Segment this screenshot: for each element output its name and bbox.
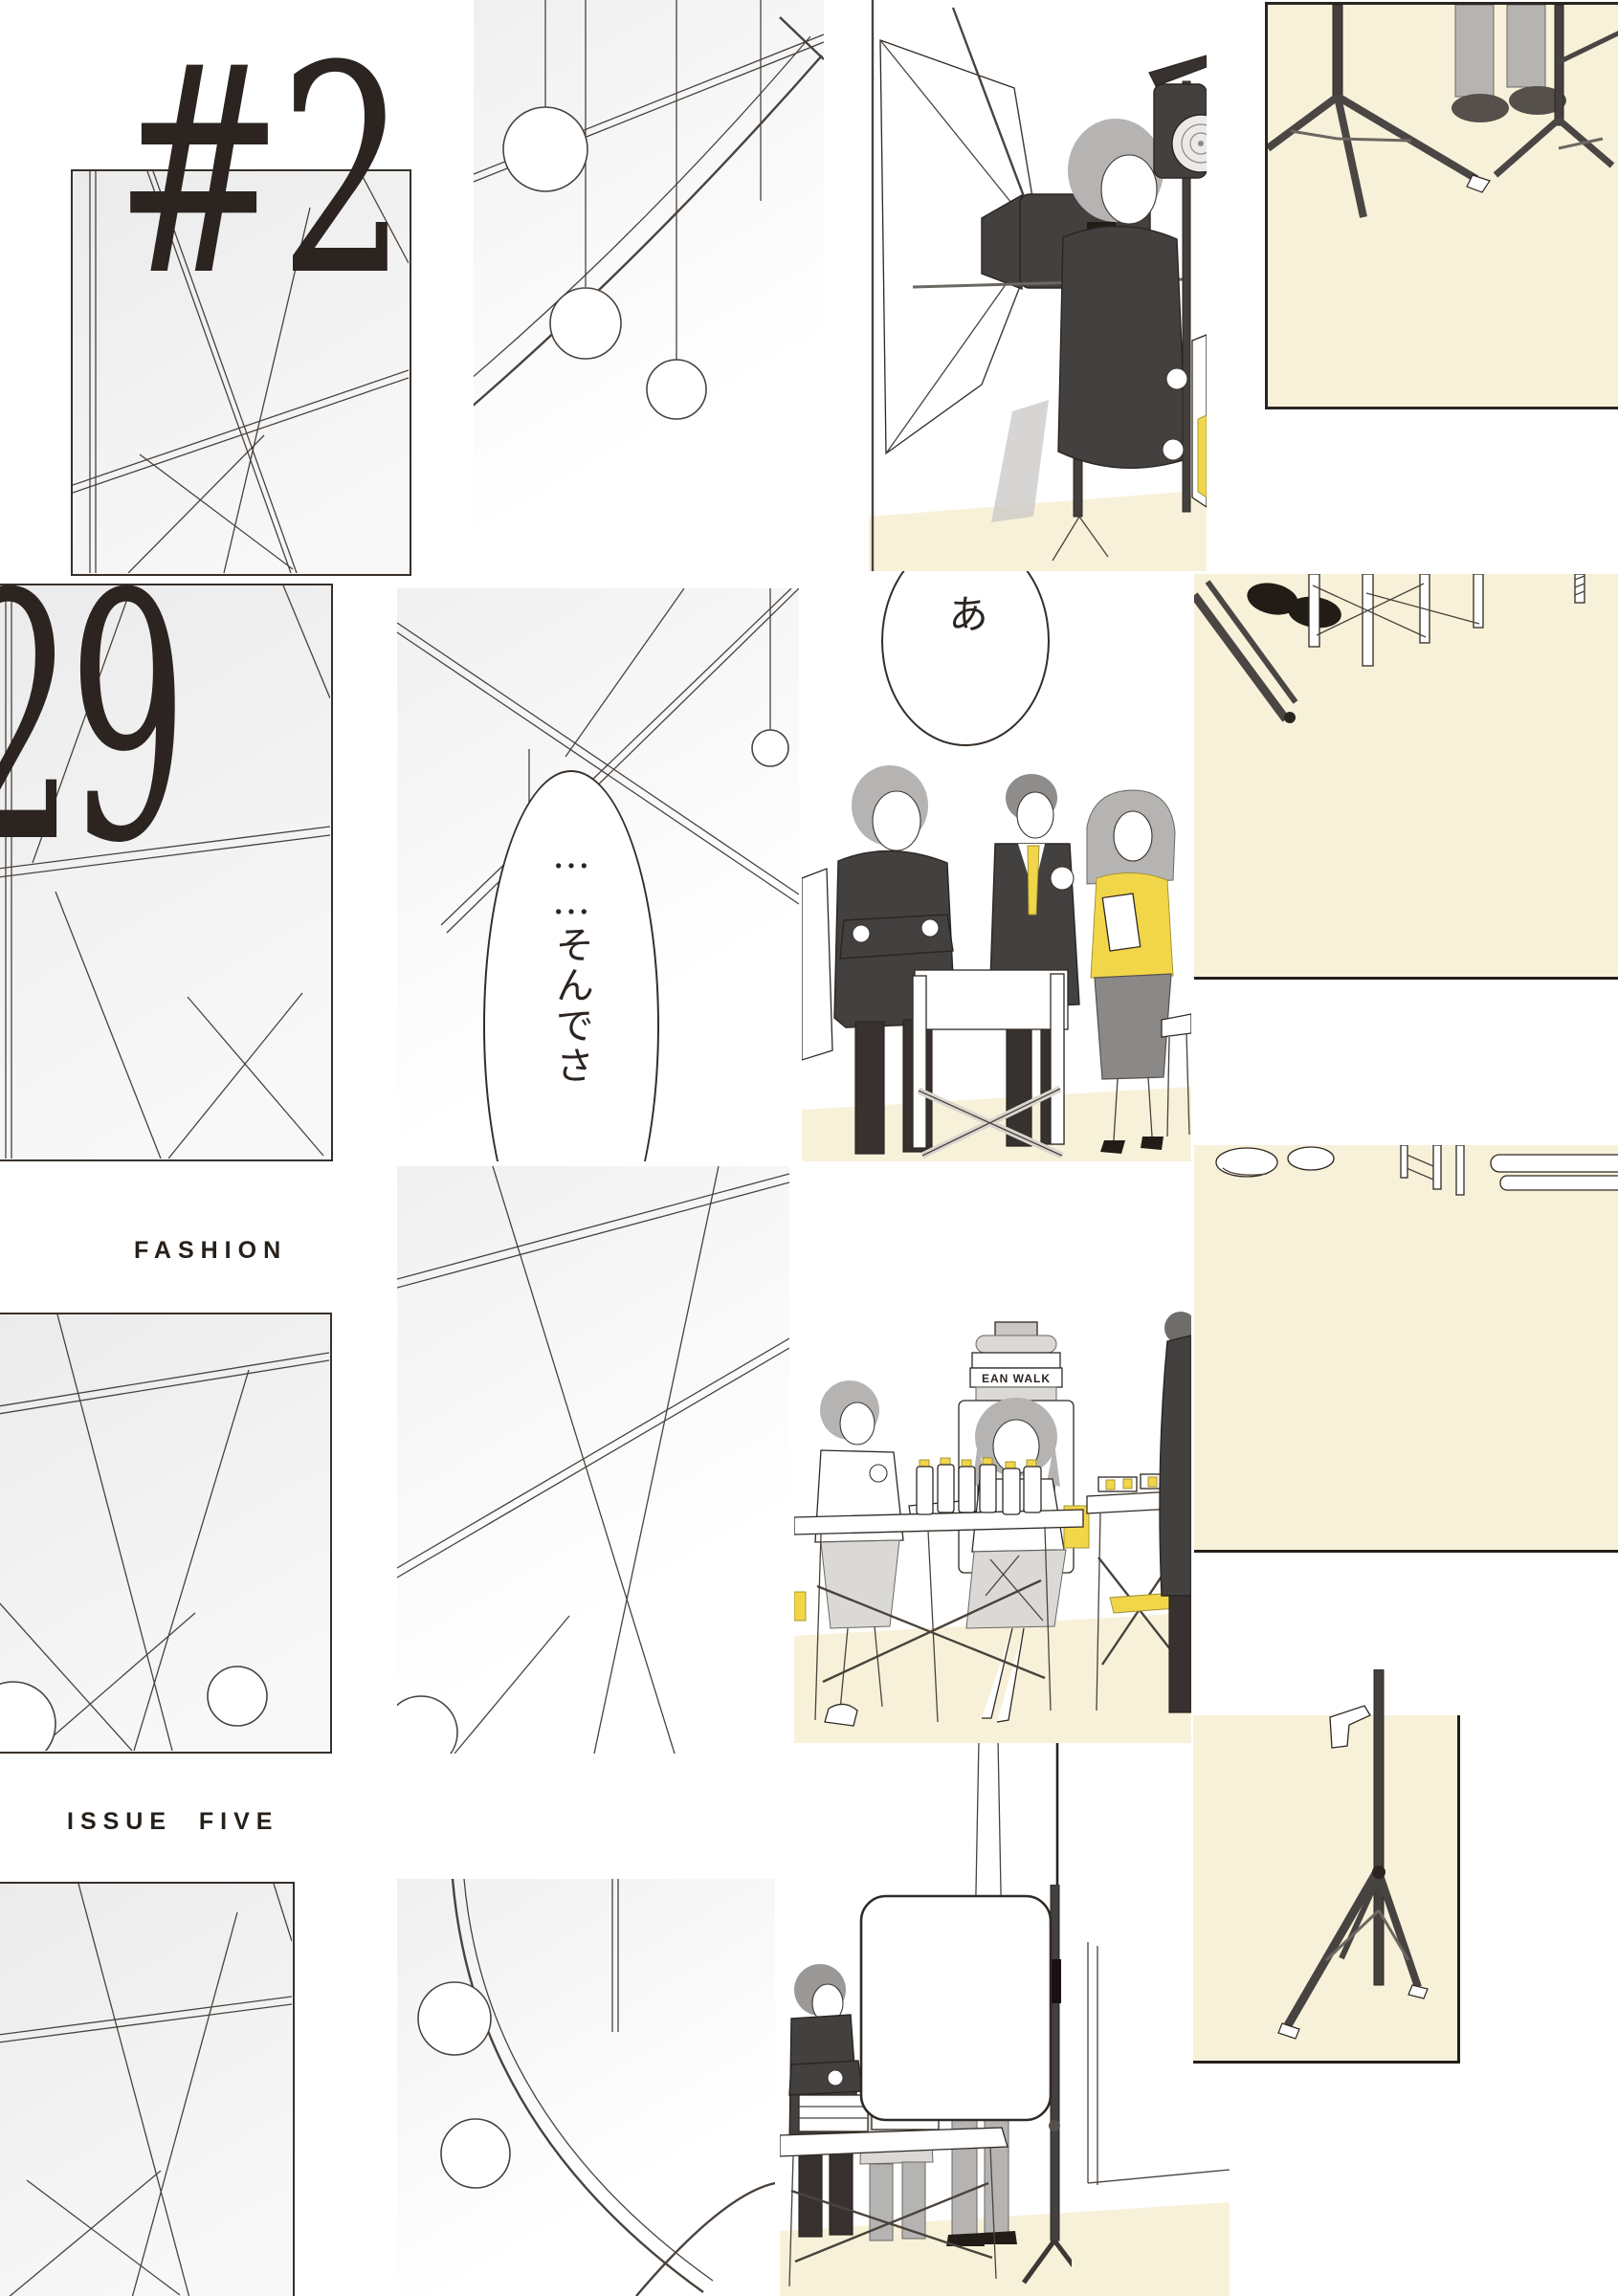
props-outline-drawing bbox=[1194, 1145, 1618, 1260]
truss-panel-bottom bbox=[397, 1879, 775, 2296]
folded-chair-outline bbox=[1491, 1155, 1618, 1195]
sphere-lamp bbox=[752, 730, 788, 766]
craft-table-panel: EAN WALK bbox=[794, 1309, 1191, 1743]
reflector-screen bbox=[842, 1885, 1072, 2296]
studio-shoot-panel bbox=[869, 0, 1207, 571]
speech-text: あ bbox=[937, 593, 995, 633]
gesturing-hand bbox=[1051, 867, 1074, 890]
hatched-post bbox=[1575, 574, 1585, 603]
sphere-lamp bbox=[647, 360, 706, 419]
studio-scene bbox=[869, 0, 1207, 571]
shoe-outline bbox=[1288, 1147, 1334, 1170]
sphere-lamp bbox=[208, 1667, 267, 1726]
ceiling-truss-drawing bbox=[397, 1166, 789, 1754]
sphere-lamp bbox=[397, 1696, 457, 1754]
held-snack bbox=[870, 1465, 887, 1482]
cream-panel-tripods bbox=[1265, 2, 1618, 409]
truss-panel-with-bubble: ……そんでさ bbox=[397, 588, 799, 1161]
tripod-stand bbox=[1273, 1669, 1469, 2052]
crew-scene bbox=[802, 735, 1191, 1161]
water-cooler-brand-label: EAN WALK bbox=[982, 1372, 1051, 1385]
truss-piece-outline bbox=[1330, 1706, 1370, 1748]
issue-label: ISSUE FIVE bbox=[67, 1808, 278, 1836]
shoe-outline bbox=[1216, 1148, 1277, 1177]
truss-panel-mid bbox=[397, 1166, 789, 1754]
ladder-legs-outline bbox=[1401, 1145, 1464, 1195]
crew-meeting-panel bbox=[802, 735, 1191, 1161]
gray-skirt bbox=[1095, 974, 1171, 1079]
collage-manga-page: #2 29 FASHION ISSUE FIVE bbox=[0, 0, 1618, 2296]
cream-panel-backstage bbox=[1194, 574, 1618, 980]
ceiling-truss-drawing bbox=[474, 0, 824, 574]
ceiling-truss-drawing bbox=[397, 1879, 775, 2296]
partial-figure-left bbox=[802, 869, 832, 1060]
producer-figure bbox=[989, 774, 1079, 1146]
assistant-figure-partial bbox=[1192, 335, 1207, 507]
sneaker bbox=[825, 1704, 857, 1726]
issue-number-fragment-top: #2 bbox=[115, 29, 403, 316]
sphere-lamp bbox=[0, 1682, 55, 1751]
truss-drawing bbox=[0, 1314, 329, 1751]
backstage-props-drawing bbox=[1194, 574, 1618, 746]
sphere-lamp bbox=[418, 1982, 491, 2055]
water-cooler-scene: EAN WALK bbox=[794, 1309, 1191, 1743]
yellow-chair-partial bbox=[794, 1592, 806, 1621]
truss-drawing bbox=[0, 1884, 292, 2296]
cream-panel-props bbox=[1194, 1145, 1618, 1553]
truss-panel-ceiling-top bbox=[474, 0, 824, 574]
sphere-lamp bbox=[441, 2119, 510, 2188]
issue-number-fragment-mid: 29 bbox=[0, 550, 181, 890]
truss-panel-lower-left bbox=[0, 1313, 332, 1754]
category-label: FASHION bbox=[134, 1237, 287, 1265]
sphere-lamp bbox=[550, 288, 621, 359]
speech-text: ……そんでさ bbox=[543, 833, 599, 1086]
sphere-lamp bbox=[503, 107, 587, 191]
studio-floor bbox=[869, 490, 1207, 571]
fresnel-light bbox=[1149, 55, 1207, 178]
truss-panel-bottom-left bbox=[0, 1882, 295, 2296]
standing-legs bbox=[1452, 5, 1566, 122]
tripod-drawing bbox=[1268, 5, 1618, 407]
held-books bbox=[1102, 894, 1140, 951]
